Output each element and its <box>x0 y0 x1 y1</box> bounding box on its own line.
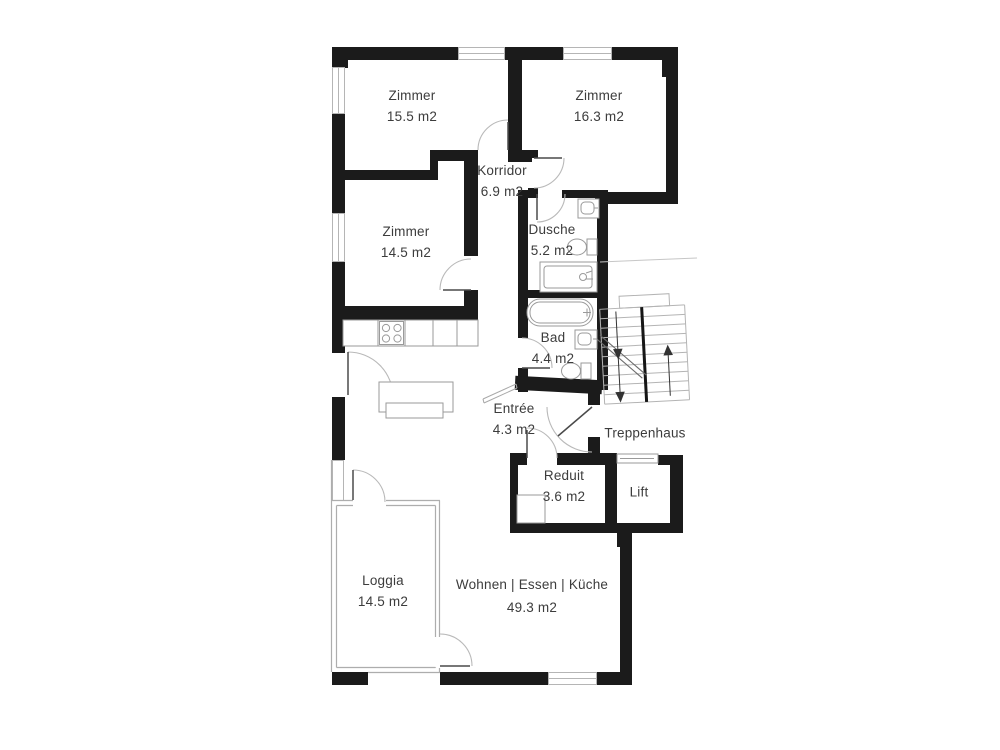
room-label-zimmer-1: Zimmer 15.5 m2 <box>387 85 437 127</box>
room-name: Lift <box>630 482 649 503</box>
dining-table <box>379 382 453 418</box>
room-name: Loggia <box>358 570 408 591</box>
room-label-bad: Bad 4.4 m2 <box>532 327 574 369</box>
room-area: 5.2 m2 <box>529 240 576 261</box>
room-area: 6.9 m2 <box>477 181 527 202</box>
room-name: Wohnen | Essen | Küche <box>456 573 608 596</box>
room-label-loggia: Loggia 14.5 m2 <box>358 570 408 612</box>
bathtub-icon <box>527 299 593 326</box>
door-arc <box>478 120 508 150</box>
floor-plan-canvas <box>0 0 1000 750</box>
window <box>563 48 612 60</box>
room-label-treppenhaus: Treppenhaus <box>604 423 685 444</box>
door-arc <box>534 158 564 188</box>
window <box>548 673 597 685</box>
room-area: 15.5 m2 <box>387 106 437 127</box>
room-name: Zimmer <box>387 85 437 106</box>
window <box>333 213 345 262</box>
floor-plan-page: Zimmer 15.5 m2 Zimmer 16.3 m2 Korridor 6… <box>0 0 1000 750</box>
stairs <box>594 293 689 405</box>
room-name: Bad <box>532 327 574 348</box>
room-label-zimmer-3: Zimmer 14.5 m2 <box>381 221 431 263</box>
door-arc <box>353 470 385 502</box>
room-area: 49.3 m2 <box>456 596 608 619</box>
sink-icon <box>578 199 599 218</box>
room-label-lift: Lift <box>630 482 649 503</box>
stair-landing-line <box>600 258 697 262</box>
loggia-walls <box>332 460 441 673</box>
room-name: Treppenhaus <box>604 423 685 444</box>
room-area: 4.3 m2 <box>493 419 535 440</box>
sink-icon <box>575 330 597 349</box>
room-area: 3.6 m2 <box>543 486 585 507</box>
room-name: Reduit <box>543 465 585 486</box>
door-arc <box>440 259 471 290</box>
window <box>333 67 345 114</box>
stove-icon <box>380 322 404 345</box>
door-arc <box>440 634 472 666</box>
room-label-entree: Entrée 4.3 m2 <box>493 398 535 440</box>
room-name: Korridor <box>477 160 527 181</box>
window <box>333 461 344 501</box>
window <box>458 48 505 60</box>
room-name: Dusche <box>529 219 576 240</box>
room-name: Zimmer <box>574 85 624 106</box>
room-area: 4.4 m2 <box>532 348 574 369</box>
door-leaf <box>558 407 592 436</box>
door-arc <box>537 194 565 222</box>
storage-shelf <box>517 495 545 523</box>
room-area: 14.5 m2 <box>381 242 431 263</box>
room-area: 16.3 m2 <box>574 106 624 127</box>
room-area: 14.5 m2 <box>358 591 408 612</box>
room-label-wohnen-essen-kueche: Wohnen | Essen | Küche 49.3 m2 <box>456 573 608 619</box>
lift-door <box>617 454 658 463</box>
room-label-dusche: Dusche 5.2 m2 <box>529 219 576 261</box>
room-label-zimmer-2: Zimmer 16.3 m2 <box>574 85 624 127</box>
room-label-reduit: Reduit 3.6 m2 <box>543 465 585 507</box>
room-label-korridor: Korridor 6.9 m2 <box>477 160 527 202</box>
room-name: Entrée <box>493 398 535 419</box>
room-name: Zimmer <box>381 221 431 242</box>
shower-tray-icon <box>540 262 597 292</box>
kitchen-counter <box>343 320 478 346</box>
